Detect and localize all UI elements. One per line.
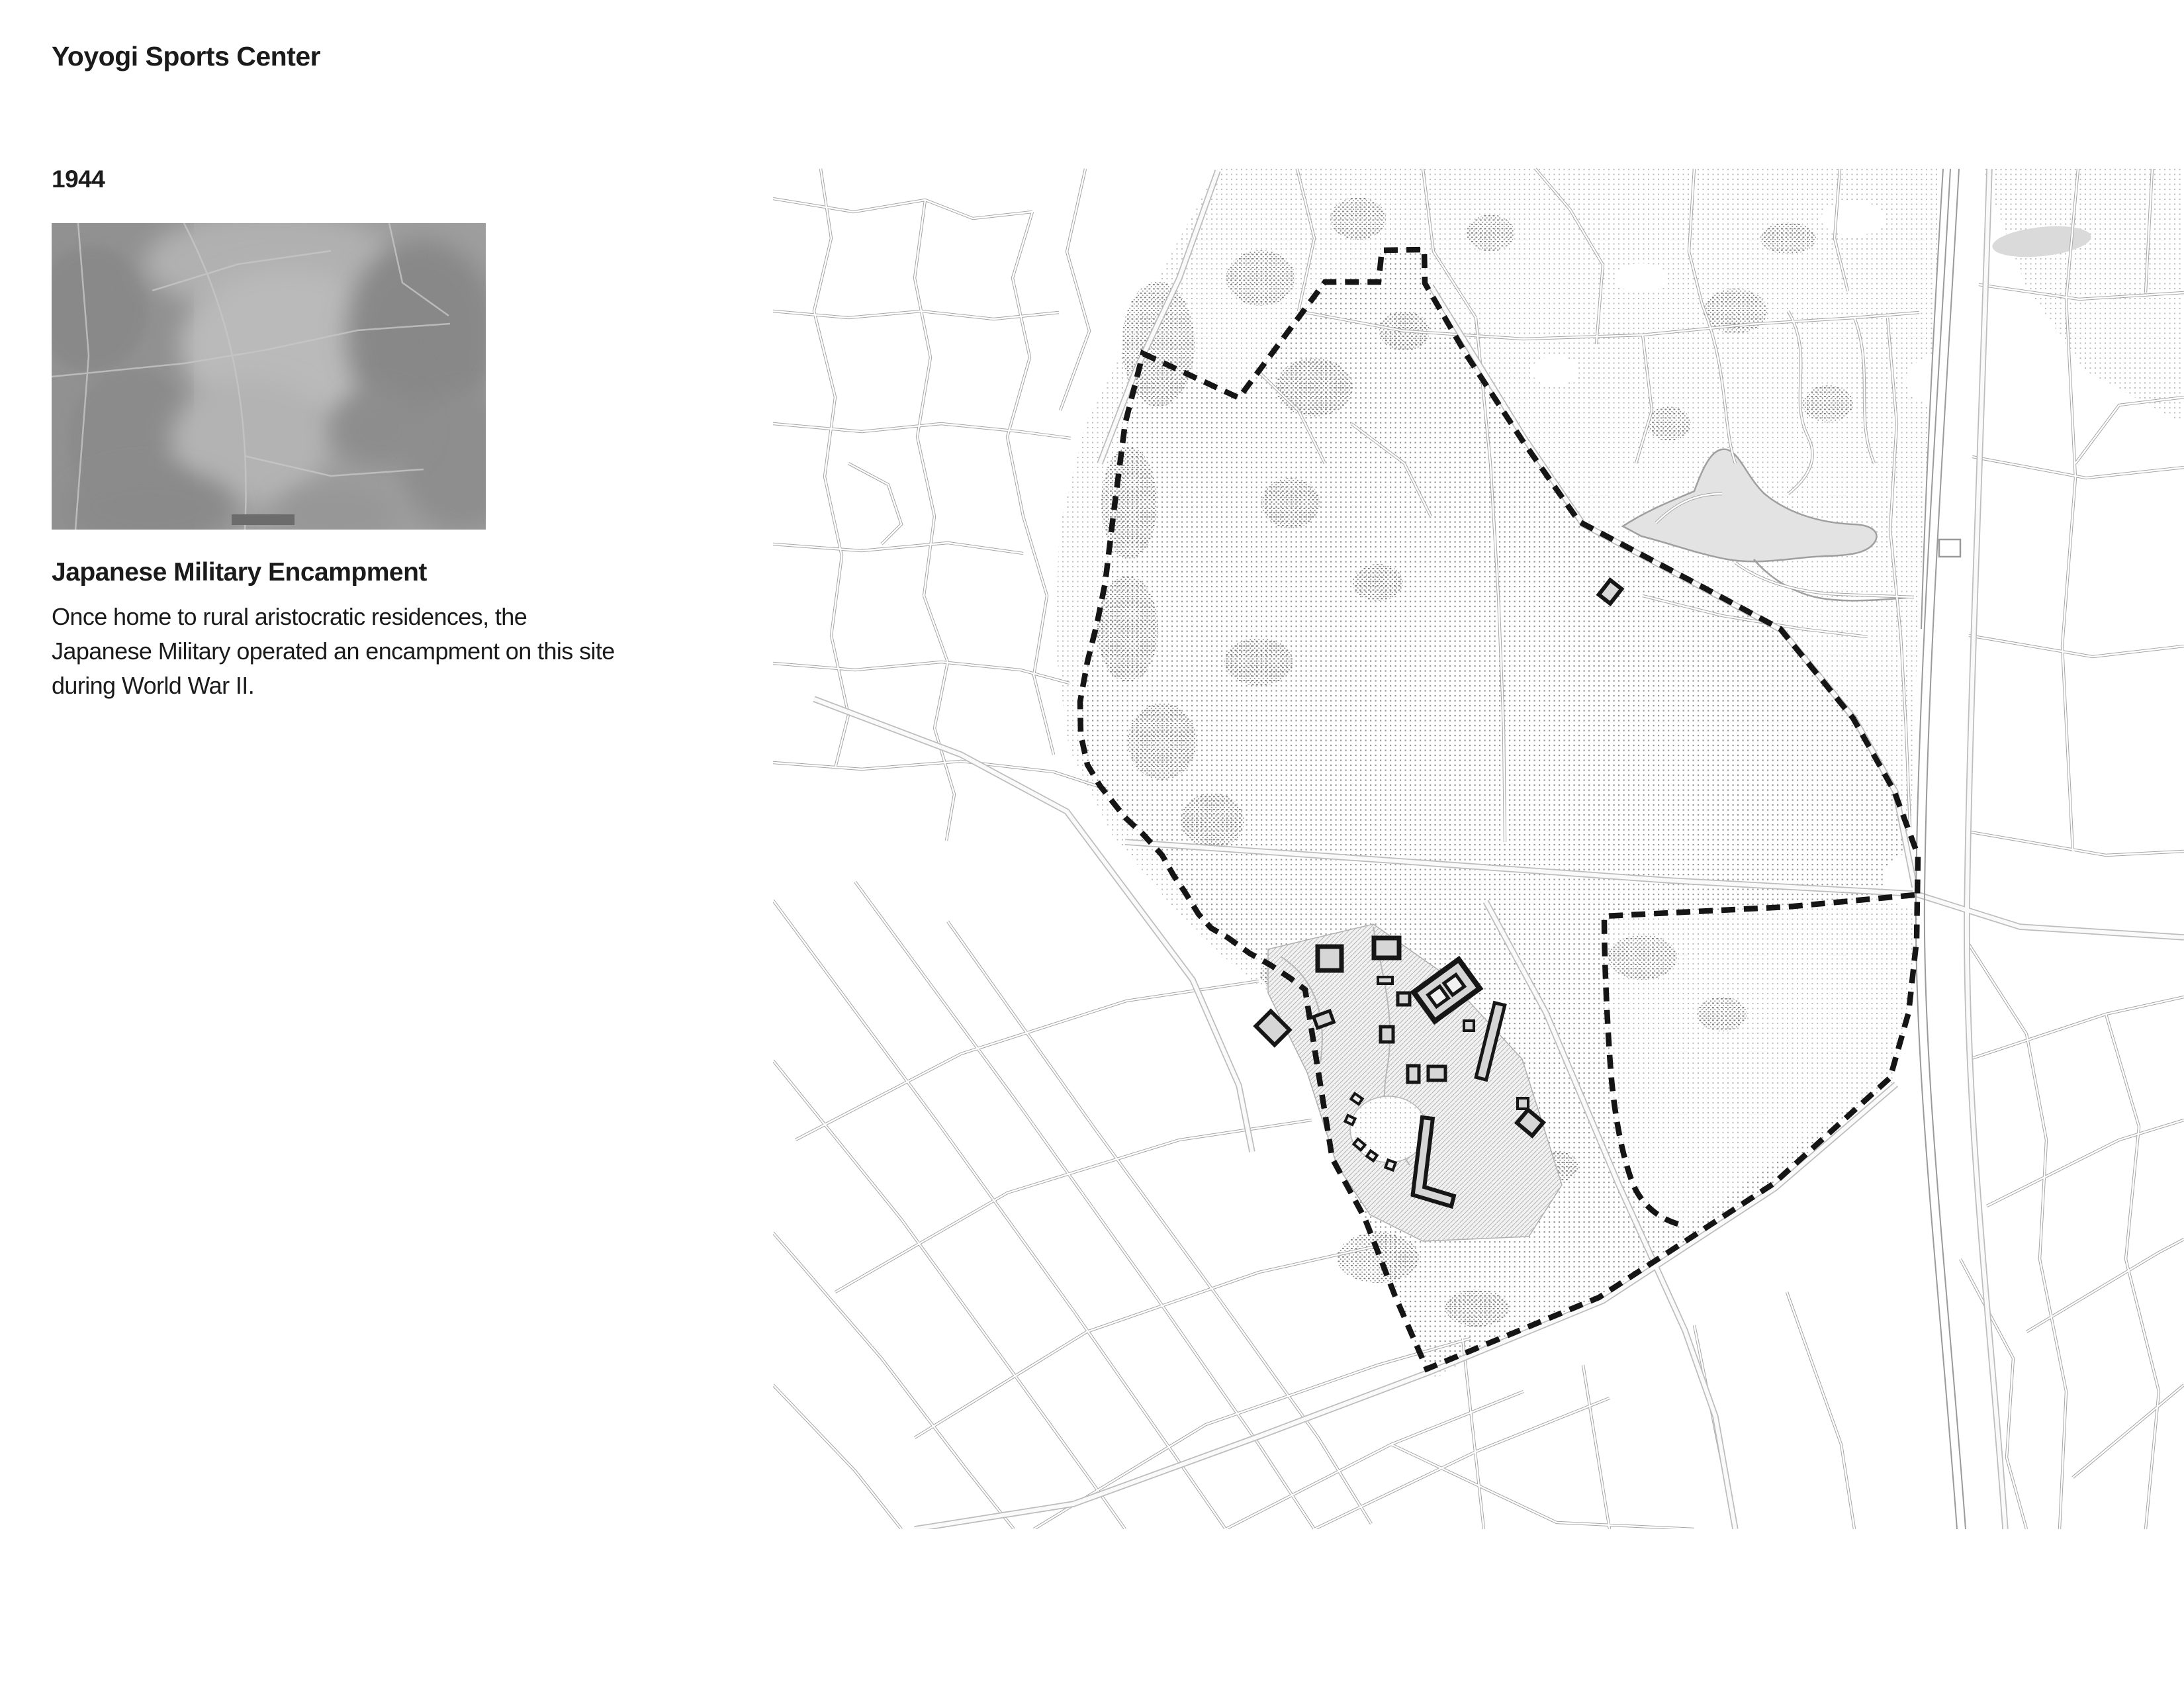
- year-label: 1944: [52, 165, 105, 193]
- page-title: Yoyogi Sports Center: [52, 41, 320, 72]
- aerial-photo-graphic: [52, 223, 486, 530]
- body-line: Japanese Military operated an encampment…: [52, 634, 707, 669]
- section-heading: Japanese Military Encampment: [52, 558, 427, 587]
- body-line: during World War II.: [52, 669, 707, 703]
- shrine-building: [1939, 539, 1960, 557]
- body-line: Once home to rural aristocratic residenc…: [52, 600, 707, 634]
- site-map-figure: [773, 168, 2184, 1529]
- section-body: Once home to rural aristocratic residenc…: [52, 600, 707, 703]
- aerial-photo-1944: [52, 223, 486, 530]
- site-map-graphic: [773, 168, 2184, 1529]
